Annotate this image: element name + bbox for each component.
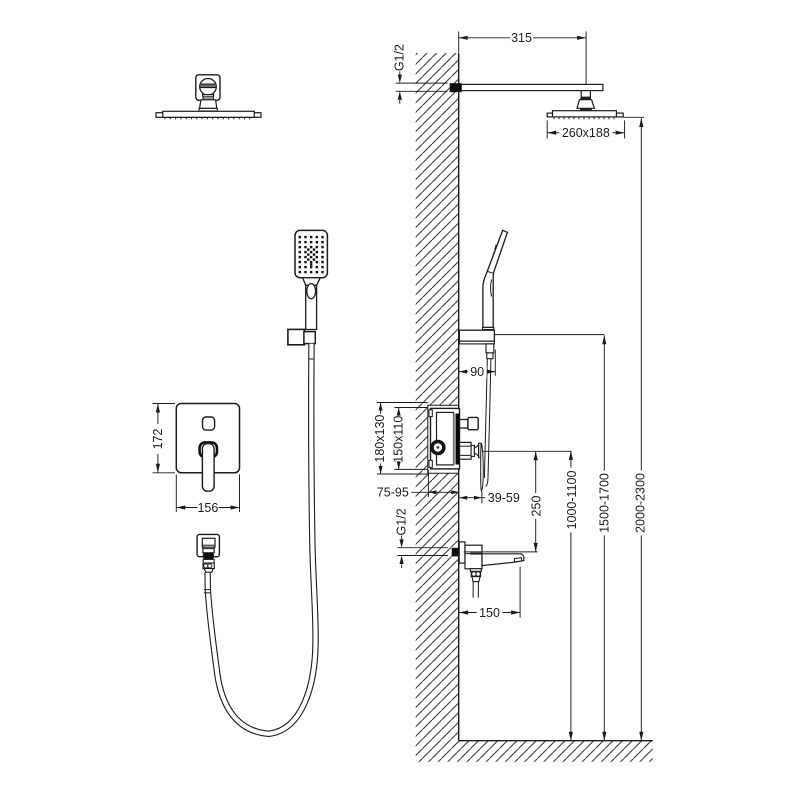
svg-text:180x130: 180x130 — [373, 415, 387, 463]
svg-text:90: 90 — [470, 365, 484, 379]
svg-text:1500-1700: 1500-1700 — [597, 473, 611, 533]
svg-text:156: 156 — [197, 501, 218, 515]
svg-text:150x110: 150x110 — [392, 416, 406, 463]
svg-text:75-95: 75-95 — [377, 486, 409, 500]
svg-text:260x188: 260x188 — [562, 126, 610, 140]
svg-text:G1/2: G1/2 — [393, 44, 407, 71]
svg-text:2000-2300: 2000-2300 — [633, 473, 647, 533]
svg-text:250: 250 — [529, 496, 543, 517]
svg-text:172: 172 — [151, 429, 165, 450]
svg-text:39-59: 39-59 — [488, 491, 520, 505]
svg-text:1000-1100: 1000-1100 — [565, 471, 579, 530]
svg-text:315: 315 — [511, 31, 532, 45]
svg-text:150: 150 — [479, 606, 500, 620]
svg-text:G1/2: G1/2 — [395, 508, 409, 535]
